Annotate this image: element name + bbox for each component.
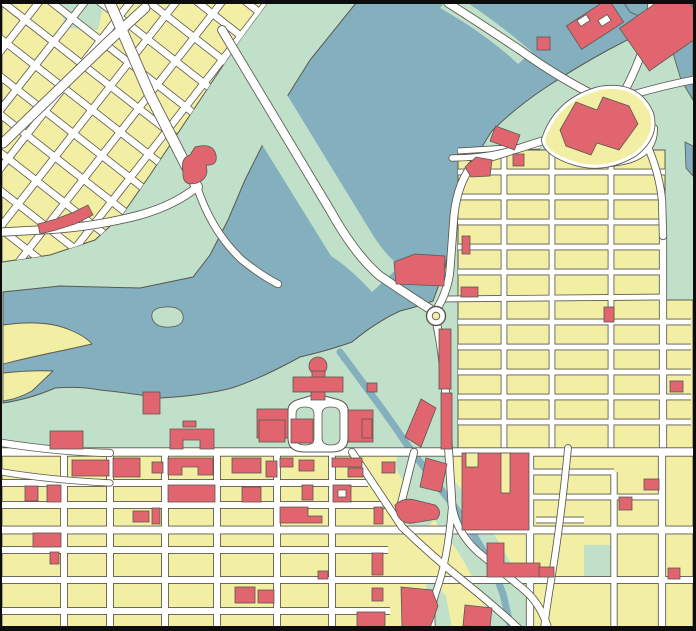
lake-island [152, 307, 183, 327]
roundabout [427, 307, 446, 326]
map-viewport[interactable] [0, 0, 696, 631]
map-canvas[interactable] [0, 0, 696, 631]
